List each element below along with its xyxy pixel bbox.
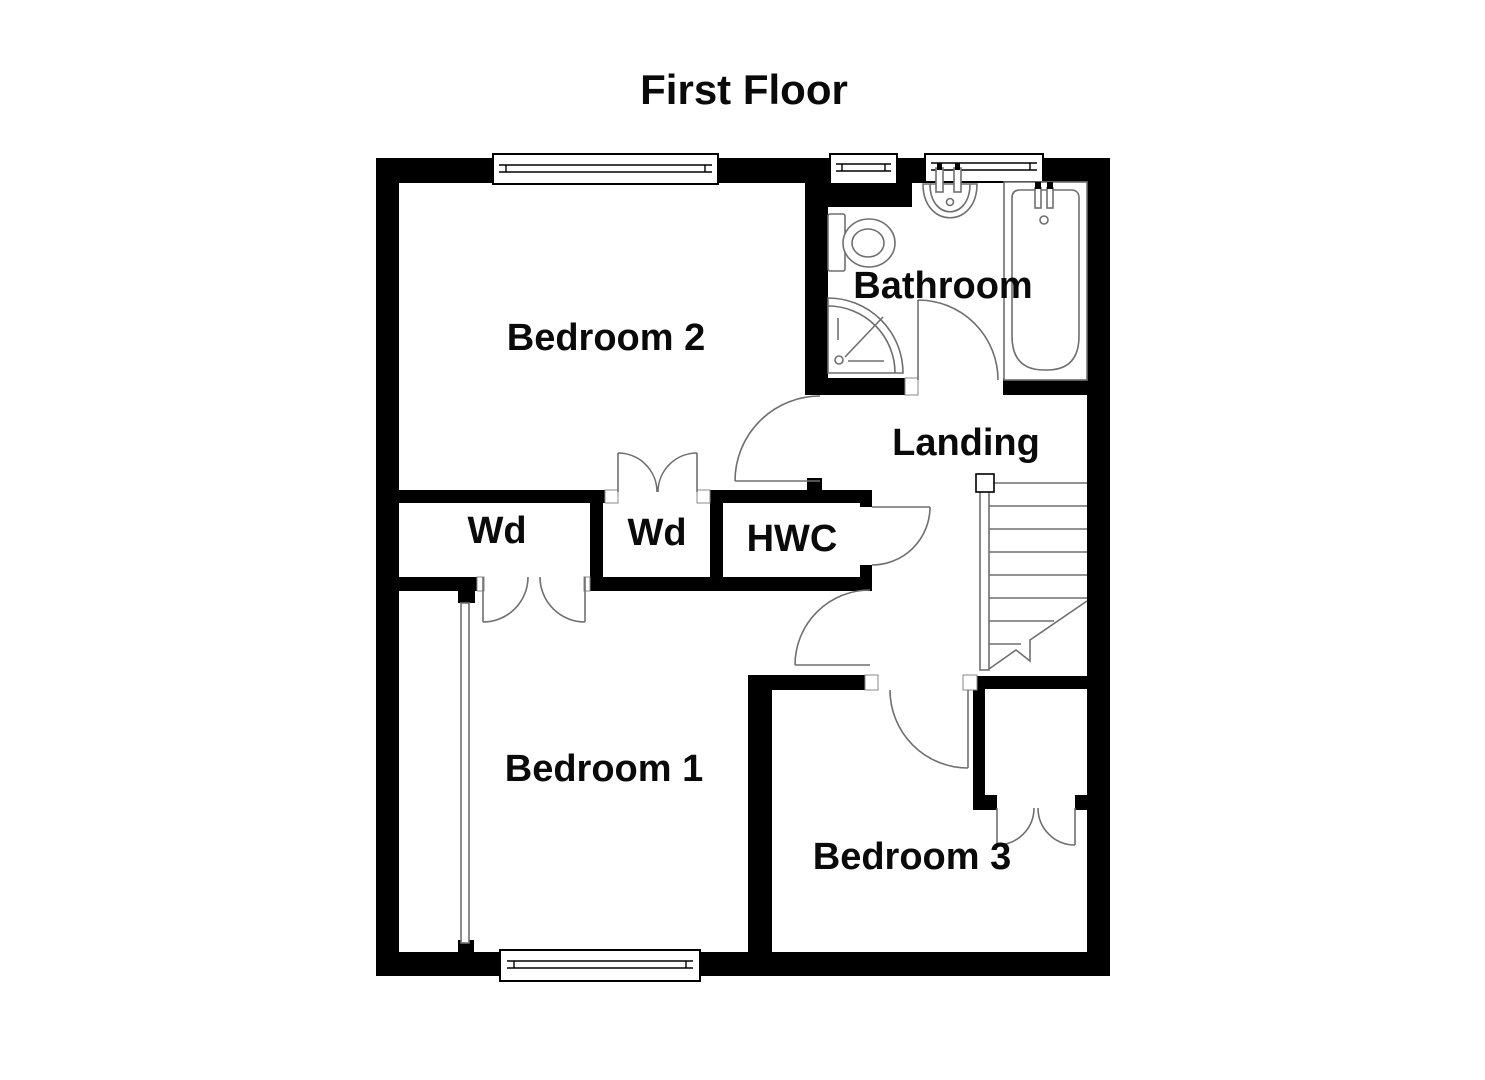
- jamb-bedroom3-right: [963, 675, 977, 690]
- wall-bedroom3-closet-top: [977, 676, 1087, 689]
- window-bedroom2: [493, 154, 718, 184]
- bath-tap-left: [1035, 188, 1041, 208]
- room-label-bathroom: Bathroom: [853, 265, 1032, 307]
- jamb-wardrobe2-right: [697, 490, 710, 503]
- floorplan-page: First Floor: [0, 0, 1485, 1080]
- jamb-bedroom3-left: [865, 675, 878, 690]
- window-bedroom1: [500, 950, 700, 981]
- door-hwc: [872, 507, 930, 565]
- door-wardrobe2-double: [618, 453, 697, 492]
- wall-closet-top-left: [398, 490, 605, 503]
- room-label-hwc: HWC: [747, 518, 838, 560]
- wall-wardrobe1-right: [590, 503, 603, 577]
- window-small-top: [830, 154, 897, 184]
- door-bedroom1: [795, 590, 870, 665]
- door-bedroom2: [735, 396, 820, 481]
- wall-tab-below-wardrobe1: [458, 591, 475, 603]
- bath-tap-right: [1047, 188, 1053, 208]
- door-bedroom3: [890, 690, 968, 768]
- wall-hinge-tab-bedroom2-door: [807, 478, 822, 490]
- shower: [828, 298, 903, 373]
- wall-bedroom1-bedroom3-divider: [748, 675, 772, 952]
- room-label-bedroom2: Bedroom 2: [507, 317, 705, 359]
- stair-break-line: [989, 601, 1087, 669]
- room-label-bedroom3: Bedroom 3: [813, 836, 1011, 878]
- room-label-landing: Landing: [892, 422, 1040, 464]
- wall-bedroom3-closet-left: [973, 688, 985, 810]
- door-bathroom: [918, 300, 998, 380]
- sink-tap-left: [936, 168, 943, 192]
- sink-tap-right: [954, 168, 961, 192]
- toilet: [828, 214, 895, 271]
- bedroom1-partition-line: [461, 603, 469, 943]
- jamb-wardrobe2-left: [605, 490, 618, 503]
- wall-bedroom3-top: [748, 675, 865, 690]
- plan-title: First Floor: [640, 66, 848, 113]
- wall-bedroom3-closet-bottom-left: [973, 795, 997, 810]
- wall-bathroom-south-left: [828, 378, 907, 395]
- wall-wardrobe2-right: [710, 503, 723, 577]
- wall-hwc-right-top: [860, 490, 872, 507]
- wall-closet-bottom-right: [590, 577, 872, 591]
- wall-closet-bottom-left: [398, 577, 477, 591]
- floorplan-drawing: First Floor: [0, 0, 1485, 1080]
- wall-left: [376, 158, 399, 976]
- staircase: [976, 474, 1087, 670]
- wall-right: [1087, 158, 1110, 976]
- room-label-wardrobe1: Wd: [467, 510, 526, 552]
- wall-bedroom3-closet-bottom-right: [1075, 795, 1087, 810]
- door-wardrobe1-double: [483, 577, 585, 622]
- stair-treads: [989, 483, 1087, 644]
- jamb-bathroom-door: [905, 378, 918, 395]
- wall-closet-top-right: [710, 490, 872, 503]
- room-label-bedroom1: Bedroom 1: [505, 748, 703, 790]
- room-label-wardrobe2: Wd: [627, 512, 686, 554]
- wall-hwc-right-bottom: [860, 565, 872, 591]
- wall-bottom: [376, 952, 1110, 976]
- stair-newel-post: [976, 474, 994, 492]
- wall-bedroom2-right: [805, 183, 828, 395]
- stair-rail: [980, 490, 989, 670]
